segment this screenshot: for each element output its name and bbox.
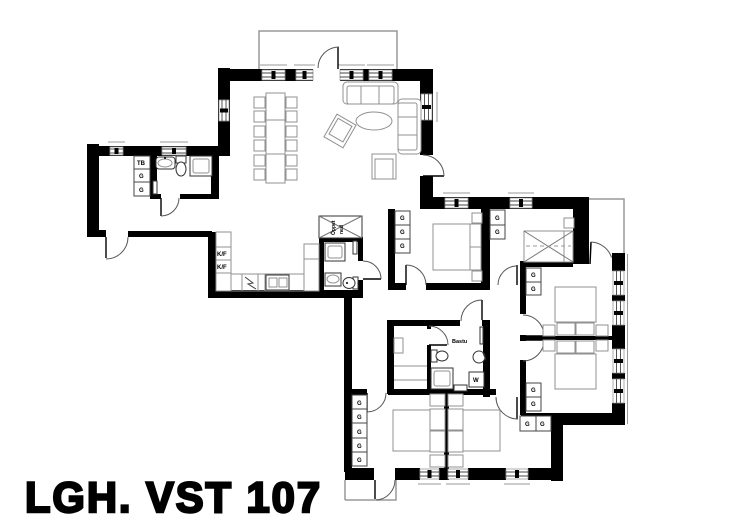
svg-text:LGH. VST 107: LGH. VST 107 <box>25 474 322 522</box>
svg-text:G: G <box>357 458 362 464</box>
svg-text:G: G <box>531 287 536 293</box>
svg-text:G: G <box>531 388 536 394</box>
svg-text:G: G <box>400 244 405 250</box>
svg-text:G: G <box>357 401 362 407</box>
svg-text:ned: ned <box>339 225 345 234</box>
svg-text:G: G <box>357 430 362 436</box>
svg-text:G: G <box>400 216 405 222</box>
svg-text:G: G <box>357 415 362 421</box>
svg-text:K/F: K/F <box>217 252 227 258</box>
svg-text:G: G <box>139 174 144 180</box>
svg-text:G: G <box>357 444 362 450</box>
svg-text:G: G <box>139 188 144 194</box>
svg-text:W: W <box>473 378 479 384</box>
svg-text:TB: TB <box>137 161 146 167</box>
svg-text:G: G <box>531 402 536 408</box>
svg-text:K/F: K/F <box>217 265 227 271</box>
svg-text:G: G <box>400 230 405 236</box>
svg-text:G: G <box>525 422 530 428</box>
svg-text:Bastu: Bastu <box>452 339 467 345</box>
svg-text:G: G <box>540 422 545 428</box>
svg-text:G: G <box>495 216 500 222</box>
svg-text:G: G <box>495 230 500 236</box>
svg-text:G: G <box>531 273 536 279</box>
svg-text:Öppet: Öppet <box>330 220 337 235</box>
